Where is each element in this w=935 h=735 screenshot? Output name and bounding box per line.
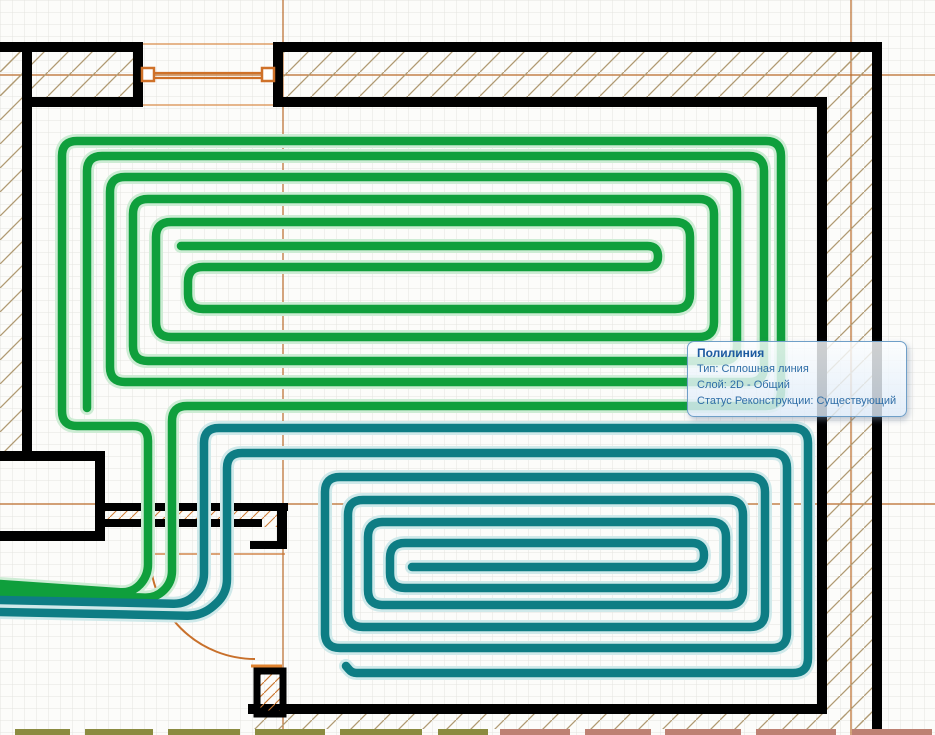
wall-segment [100,503,288,511]
wall-hatch [252,714,872,729]
tooltip-line-type: Тип: Сплошная линия [697,362,896,378]
window-end-cap [142,68,154,81]
tooltip-layer: Слой: 2D - Общий [697,378,896,394]
section-mark-brick [756,729,836,735]
section-mark-olive [340,729,422,735]
wall-segment [0,531,105,541]
section-mark-brick [852,729,932,735]
cad-viewport[interactable]: Полилиния Тип: Сплошная линия Слой: 2D -… [0,0,935,735]
tooltip-reconstruction-status: Статус Реконструкции: Существующий [697,394,896,410]
section-mark-brick [665,729,741,735]
wall-hatch [283,52,872,97]
section-mark-brick [500,729,570,735]
section-mark-olive [438,729,488,735]
wall-segment [248,704,827,714]
section-mark-olive [85,729,153,735]
wall-segment [0,42,143,52]
wall-segment [22,47,32,453]
wall-segment [95,451,105,541]
wall-segment [27,97,143,107]
tooltip-entity-type: Полилиния [697,346,896,360]
wall-segment [0,451,105,461]
wall-segment [250,541,287,549]
wall-segment [100,519,262,527]
window-end-cap [262,68,274,81]
wall-segment [273,42,882,52]
section-mark-brick [585,729,651,735]
door-jamb [257,671,283,714]
wall-hatch [0,52,22,451]
section-mark-olive [255,729,325,735]
section-mark-olive [168,729,240,735]
section-mark-olive [15,729,70,735]
wall-segment [283,97,827,107]
entity-tooltip: Полилиния Тип: Сплошная линия Слой: 2D -… [687,341,907,417]
